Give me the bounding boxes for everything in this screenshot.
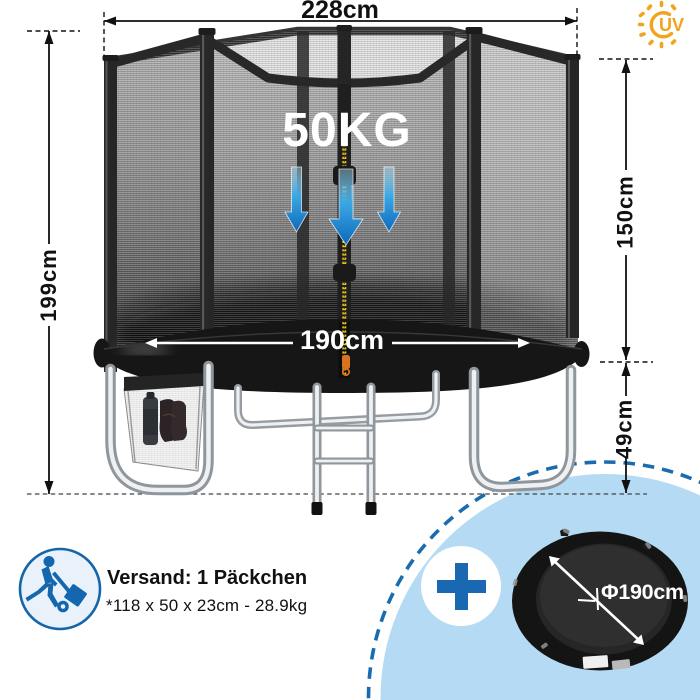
svg-text:Versand: 1 Päckchen: Versand: 1 Päckchen <box>107 567 307 589</box>
svg-text:150cm: 150cm <box>613 175 638 249</box>
svg-text:50KG: 50KG <box>282 104 411 157</box>
svg-text:*118 x 50 x 23cm - 28.9kg: *118 x 50 x 23cm - 28.9kg <box>106 596 307 615</box>
svg-text:Φ190cm: Φ190cm <box>601 580 684 604</box>
svg-text:228cm: 228cm <box>301 0 379 24</box>
svg-text:UV: UV <box>659 15 684 35</box>
svg-text:190cm: 190cm <box>300 325 384 355</box>
svg-text:49cm: 49cm <box>612 399 637 459</box>
svg-text:199cm: 199cm <box>36 248 61 322</box>
